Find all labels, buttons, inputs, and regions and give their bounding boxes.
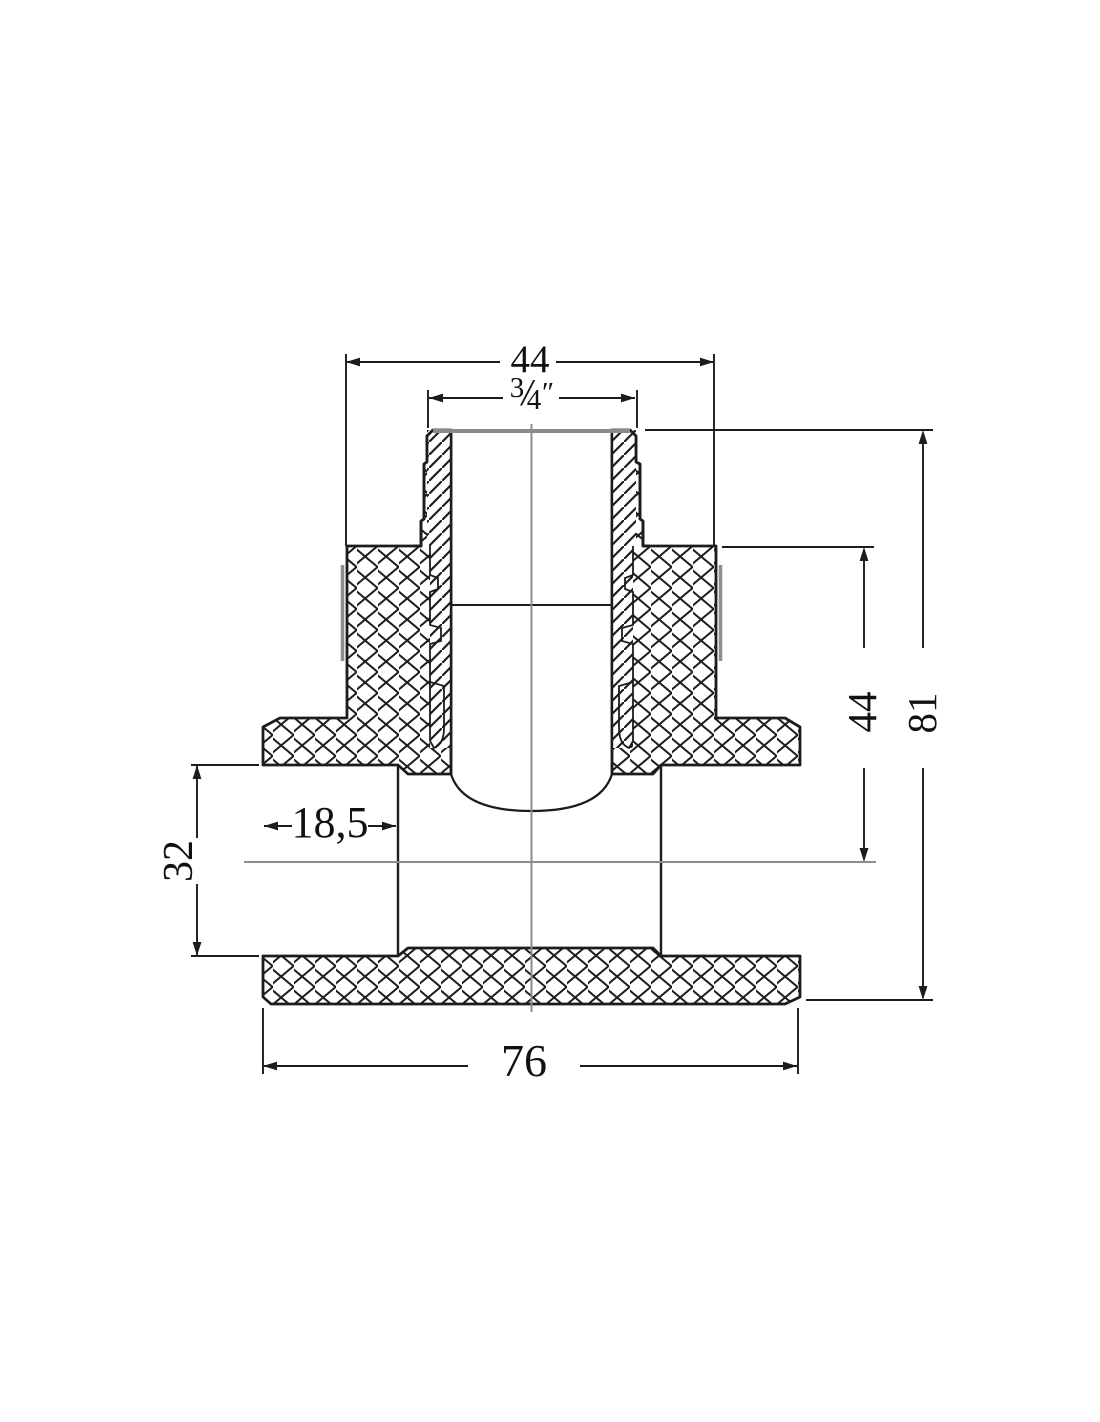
svg-text:76: 76 <box>501 1035 547 1086</box>
svg-text:18,5: 18,5 <box>292 798 369 847</box>
svg-text:32: 32 <box>156 840 202 882</box>
svg-text:″: ″ <box>542 377 554 409</box>
svg-text:81: 81 <box>899 693 945 734</box>
svg-text:4: 4 <box>527 384 542 416</box>
svg-text:44: 44 <box>839 692 885 733</box>
